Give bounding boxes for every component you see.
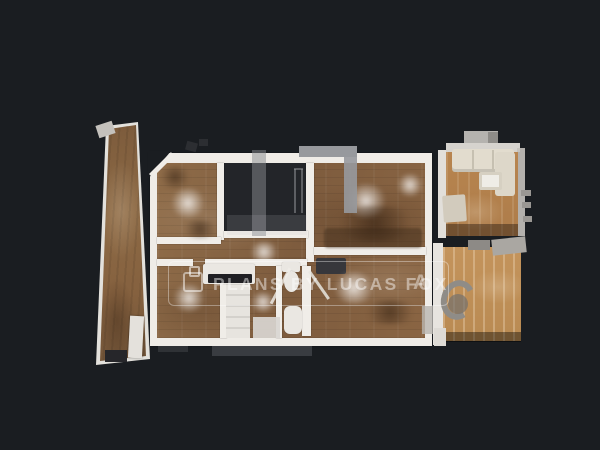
bath-mat <box>253 317 280 338</box>
ceiling-light-glow <box>248 242 280 262</box>
terrace-bench <box>128 316 144 359</box>
rooftop-object <box>199 139 208 146</box>
living-wall-left <box>438 150 446 238</box>
wall-fragment <box>434 328 446 346</box>
ceiling-light-glow <box>396 174 424 196</box>
rooftop-object <box>185 141 198 153</box>
large-logo-fragment <box>344 146 357 213</box>
floorplan-screenshot: PLANS BY LUCAS FOX A <box>0 0 600 450</box>
door-frame <box>294 169 296 213</box>
watermark-text: PLANS BY LUCAS FOX <box>213 274 443 295</box>
lower-level-fragment <box>212 346 312 356</box>
railing-fragment <box>523 216 532 222</box>
large-logo-fragment <box>227 215 307 235</box>
bidet <box>284 306 302 334</box>
terrace-planter <box>105 350 127 362</box>
railing-fragment <box>522 202 531 208</box>
storage-object <box>491 236 526 255</box>
wall-bedroom2-bottom <box>314 247 426 255</box>
bench <box>442 194 467 223</box>
floor-shadow <box>180 220 220 238</box>
sofa-seam <box>492 150 494 171</box>
wall-void-right <box>306 163 314 262</box>
chair-seat <box>448 294 468 314</box>
door-frame <box>301 169 303 213</box>
room-shadow <box>443 332 521 342</box>
watermark-partial-letter: A <box>413 271 428 295</box>
storage-object <box>468 240 490 250</box>
photos-icon <box>189 266 200 277</box>
floor-shadow <box>158 166 192 188</box>
ottoman-tray <box>482 175 499 187</box>
sofa-seam <box>472 150 474 171</box>
ceiling-light-glow <box>170 188 206 218</box>
living-floor-shadow <box>446 224 518 236</box>
terrace-strip <box>95 120 153 368</box>
door-frame <box>294 168 303 170</box>
lower-level-fragment <box>158 346 188 352</box>
wall-bedroom1-bottom <box>157 237 221 244</box>
railing-fragment <box>521 190 531 196</box>
